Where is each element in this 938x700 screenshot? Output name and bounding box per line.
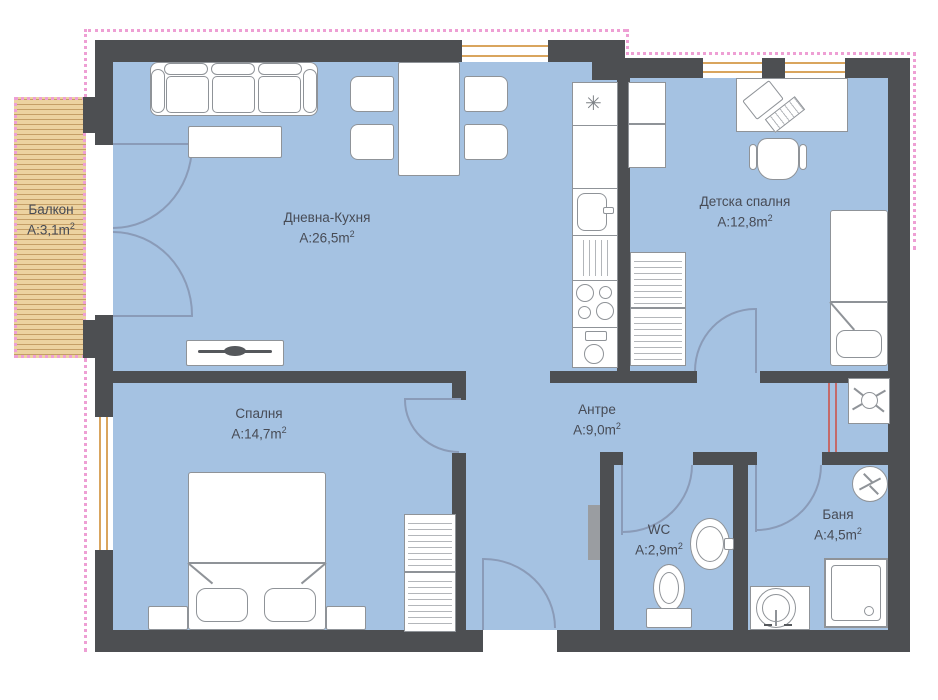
dining-chair: [464, 76, 508, 112]
wall-wc-left: [600, 453, 614, 630]
room-label-children-bedroom: Детска спалня A:12,8m2: [700, 192, 791, 232]
stove-burner: [599, 286, 612, 299]
nightstand: [148, 606, 188, 630]
railing-left-upper: [84, 29, 87, 97]
room-area: A:2,9m2: [635, 540, 683, 560]
wall-right: [888, 58, 910, 652]
hall-wardrobe-hangers: [634, 312, 682, 362]
children-door-leaf: [755, 308, 757, 373]
fan-hub-icon: [861, 392, 878, 409]
desk-chair: [757, 138, 799, 180]
children-wardrobe-divider: [628, 123, 666, 125]
room-label-hallway: Антре A:9,0m2: [573, 400, 621, 440]
terrace-railing-top-left: [88, 29, 626, 32]
terrace-railing-top-right: [626, 52, 916, 55]
room-label-bedroom: Спалня A:14,7m2: [231, 404, 286, 444]
sofa-seat: [212, 76, 255, 113]
balcony-door-leaf-bottom: [113, 315, 193, 317]
wall-top-children-1: [617, 58, 703, 78]
kitchen-drainer-grooves: [578, 240, 612, 276]
wall-bottom-2: [557, 630, 910, 652]
pillow: [264, 588, 316, 622]
hall-wardrobe-divider: [630, 307, 686, 309]
bath-sink-faucet: [775, 610, 777, 626]
stove-burner: [596, 302, 614, 320]
nightstand: [326, 606, 366, 630]
wall-wc-top-1: [600, 452, 623, 465]
wall-wc-bath: [733, 453, 748, 630]
stove-burner: [576, 284, 594, 302]
window-bedroom-left: [95, 417, 113, 550]
pillow: [196, 588, 248, 622]
toilet-tank: [646, 608, 692, 628]
room-name: Дневна-Кухня: [284, 208, 371, 228]
wall-top-living-1: [95, 40, 462, 62]
window-living-top: [462, 40, 548, 62]
room-label-bathroom: Баня A:4,5m2: [814, 505, 862, 545]
balcony-stub-bottom: [83, 320, 95, 358]
children-wardrobe: [628, 82, 666, 168]
sofa-back-cushion: [258, 63, 302, 75]
wall-left-3: [95, 550, 113, 652]
bedroom-wardrobe-divider: [404, 571, 456, 573]
kitchen-vent-unit: ✳: [572, 82, 618, 126]
wc-sink-faucet: [724, 538, 734, 550]
window-children-2: [785, 58, 845, 78]
pillow: [836, 330, 882, 358]
room-name: Детска спалня: [700, 192, 791, 212]
wall-mid-2: [550, 371, 697, 383]
desk-chair-armrest: [749, 144, 757, 170]
oven-control-panel: [585, 331, 607, 341]
room-area: A:4,5m2: [814, 525, 862, 545]
kitchen-cabinet: [572, 125, 618, 189]
room-area: A:26,5m2: [284, 228, 371, 248]
room-area: A:12,8m2: [700, 212, 791, 232]
wall-left-1: [95, 40, 113, 145]
kitchen-faucet: [603, 207, 614, 214]
wall-bath-top: [822, 452, 890, 465]
vent-fan-icon: ✳: [585, 94, 602, 114]
toilet-bowl-inner: [659, 572, 679, 604]
desk-chair-armrest: [799, 144, 807, 170]
room-name: Спалня: [231, 404, 286, 424]
plumbing-riser-line: [835, 383, 837, 452]
dining-table: [398, 62, 460, 176]
shower-drain: [864, 606, 874, 616]
wall-top-children-2: [762, 58, 785, 78]
bath-sink-handle: [784, 624, 792, 626]
sofa-seat: [166, 76, 209, 113]
room-name: Балкон: [27, 200, 75, 220]
sofa-back-cushion: [164, 63, 208, 75]
floor-plan: ✳: [0, 0, 938, 700]
sofa-seat: [258, 76, 301, 113]
bed-blanket-line: [830, 301, 888, 303]
bath-sink-handle: [764, 624, 772, 626]
wall-bottom-1: [95, 630, 483, 652]
wall-bedroom-hall-stub: [452, 371, 466, 400]
sofa-armrest: [303, 69, 317, 113]
duct-shaft: [588, 505, 600, 560]
window-children-1: [703, 58, 762, 78]
wall-mid-1: [113, 371, 452, 383]
sofa-back-cushion: [211, 63, 255, 75]
bed-blanket-line: [188, 562, 326, 564]
wall-left-2: [95, 315, 113, 417]
bedroom-wardrobe-hangers: [408, 576, 452, 628]
dining-chair: [350, 76, 394, 112]
room-label-living-kitchen: Дневна-Кухня A:26,5m2: [284, 208, 371, 248]
balcony-stub-top: [83, 97, 95, 133]
wall-wc-top-2: [693, 452, 757, 465]
terrace-railing-right: [913, 52, 916, 250]
coffee-table: [188, 126, 282, 158]
dining-chair: [464, 124, 508, 160]
room-area: A:14,7m2: [231, 424, 286, 444]
room-name: WC: [635, 520, 683, 540]
dining-chair: [350, 124, 394, 160]
room-name: Баня: [814, 505, 862, 525]
room-name: Антре: [573, 400, 621, 420]
plumbing-riser-line: [828, 383, 830, 452]
stove-burner: [578, 306, 591, 319]
room-label-wc: WC A:2,9m2: [635, 520, 683, 560]
tv-icon: [224, 346, 246, 356]
room-area: A:9,0m2: [573, 420, 621, 440]
hall-wardrobe-hangers: [634, 256, 682, 304]
wc-sink-basin: [696, 526, 724, 562]
oven-door-icon: [584, 344, 604, 364]
room-area: A:3,1m2: [27, 220, 75, 240]
bedroom-wardrobe-hangers: [408, 518, 452, 568]
room-label-balcony: Балкон A:3,1m2: [27, 200, 75, 240]
sofa-armrest: [151, 69, 165, 113]
railing-left-lower: [84, 358, 87, 652]
